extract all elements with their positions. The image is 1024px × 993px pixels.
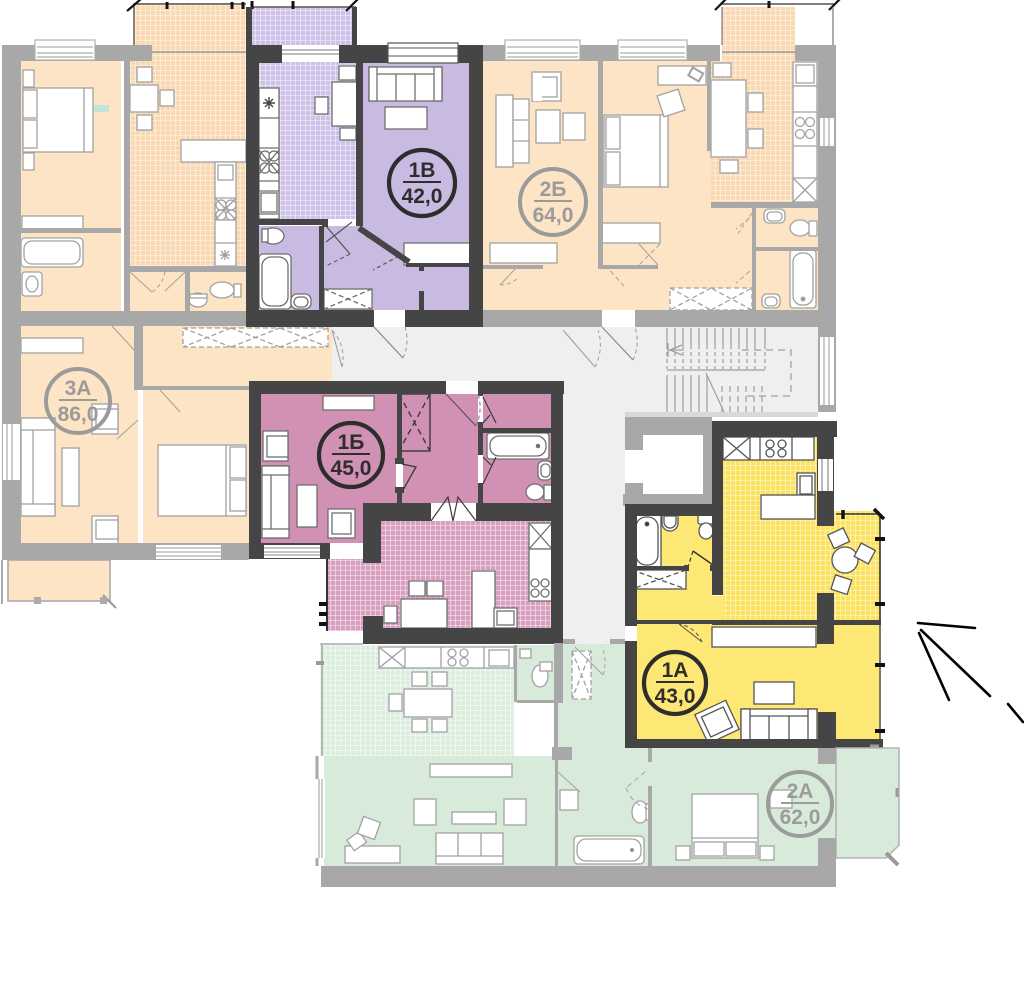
svg-text:43,0: 43,0 <box>655 685 696 708</box>
svg-text:1А: 1А <box>662 659 689 682</box>
svg-text:86,0: 86,0 <box>58 403 99 426</box>
svg-text:1Б: 1Б <box>338 431 365 454</box>
svg-text:45,0: 45,0 <box>331 457 372 480</box>
svg-text:2А: 2А <box>787 780 814 803</box>
svg-text:3А: 3А <box>65 377 92 400</box>
svg-text:62,0: 62,0 <box>780 806 821 829</box>
svg-text:42,0: 42,0 <box>402 185 443 208</box>
svg-text:1В: 1В <box>409 159 436 182</box>
svg-text:2Б: 2Б <box>540 178 567 201</box>
svg-text:64,0: 64,0 <box>533 204 574 227</box>
